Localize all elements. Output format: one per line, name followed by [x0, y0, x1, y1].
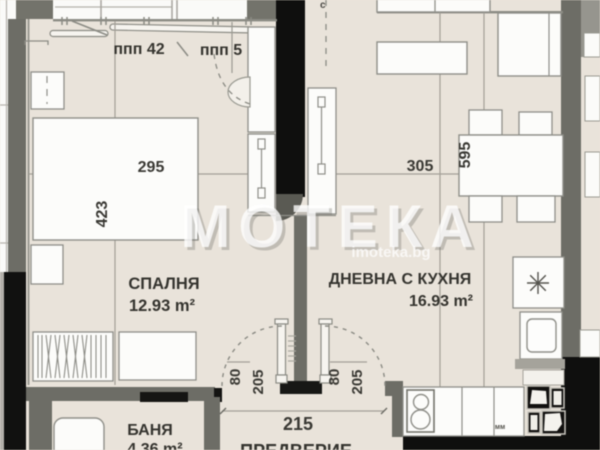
svg-text:c: c — [320, 0, 326, 11]
svg-text:4.36 m²: 4.36 m² — [127, 441, 182, 450]
svg-text:СПАЛНЯ: СПАЛНЯ — [128, 275, 199, 293]
svg-text:БАНЯ: БАНЯ — [127, 422, 173, 439]
svg-text:423: 423 — [94, 201, 111, 228]
svg-text:16.93 m²: 16.93 m² — [409, 293, 473, 310]
svg-text:МОТЕКА: МОТЕКА — [180, 193, 481, 260]
svg-text:205: 205 — [250, 369, 267, 394]
svg-text:12.93 m²: 12.93 m² — [129, 297, 196, 315]
svg-text:215: 215 — [283, 414, 313, 434]
svg-text:305: 305 — [407, 158, 434, 175]
svg-text:ппп 42: ппп 42 — [113, 41, 164, 58]
svg-text:ДНЕВНА С КУХНЯ: ДНЕВНА С КУХНЯ — [329, 271, 472, 288]
svg-text:595: 595 — [457, 142, 474, 169]
svg-text:ппп 5: ппп 5 — [200, 42, 242, 59]
svg-text:80: 80 — [326, 369, 343, 386]
svg-text:ПРЕДВЕРИЕ: ПРЕДВЕРИЕ — [240, 441, 352, 450]
svg-text:295: 295 — [138, 159, 165, 176]
svg-text:80: 80 — [227, 369, 244, 386]
svg-text:205: 205 — [349, 369, 366, 394]
svg-text:imoteka.bg: imoteka.bg — [351, 244, 430, 261]
svg-text:мм: мм — [495, 424, 505, 431]
